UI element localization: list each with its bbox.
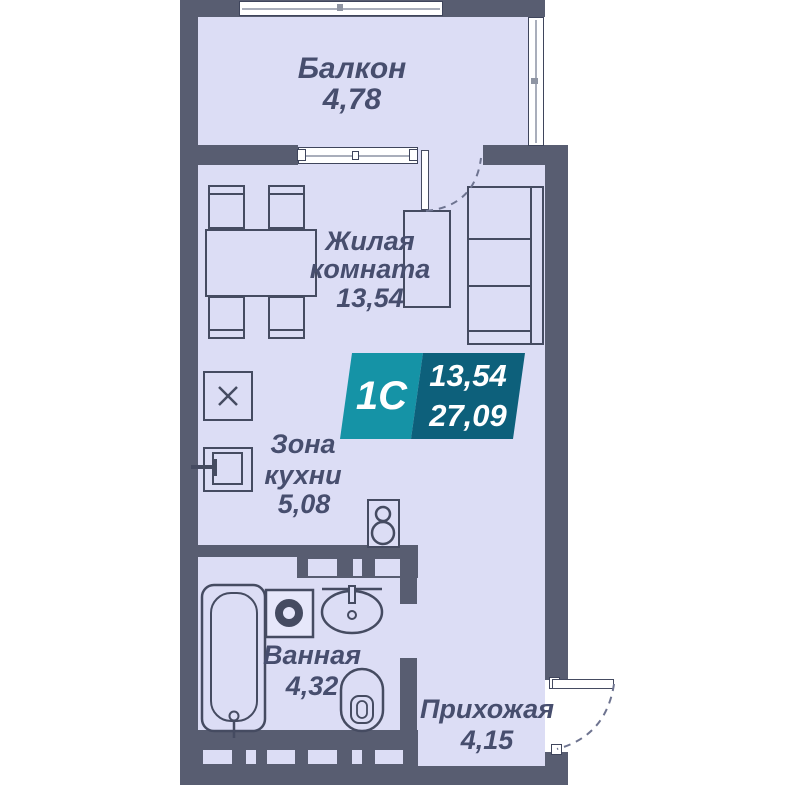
unit-total-area: 27,09 (429, 396, 507, 436)
living-room-label-line1: Жилая (270, 227, 470, 257)
living-room-label-line2: комната (270, 255, 470, 285)
kitchen-label-line1: Зона (203, 430, 403, 460)
kitchen-label-line2: кухни (203, 461, 403, 491)
unit-living-area: 13,54 (429, 356, 507, 396)
bathroom-label: Ванная (212, 641, 412, 671)
bathroom-sink-icon (322, 586, 382, 633)
washing-machine-icon (266, 590, 313, 637)
unit-areas-badge: 13,54 27,09 (411, 353, 525, 439)
unit-type-badge: 1С (340, 353, 423, 439)
stove-x-icon (219, 387, 237, 405)
hallway-area: 4,15 (387, 726, 587, 756)
balcony-label: Балкон (252, 52, 452, 85)
unit-type-label: 1С (356, 374, 407, 419)
hallway-label: Прихожая (387, 695, 587, 725)
balcony-area: 4,78 (252, 83, 452, 116)
bathroom-area: 4,32 (212, 672, 412, 702)
kitchen-area: 5,08 (204, 490, 404, 520)
balcony-door-arc (426, 158, 481, 211)
living-room-area: 13,54 (270, 284, 470, 314)
floor-plan: 1С 13,54 27,09 Балкон 4,78 Жилая комната… (0, 0, 794, 794)
